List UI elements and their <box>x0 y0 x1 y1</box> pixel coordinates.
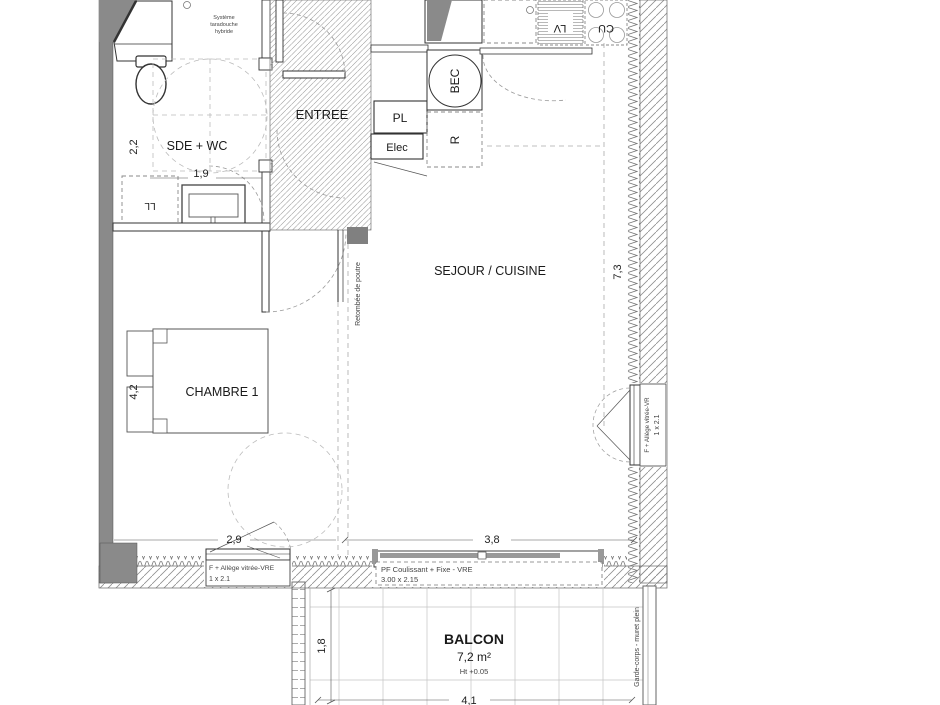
chambre-window-note-l1: F + Allège vitrée-VRE <box>209 565 275 572</box>
dishwasher-label: LV <box>553 22 566 34</box>
bottom-left-wall-block <box>100 543 137 583</box>
beam-block <box>347 227 368 244</box>
washing-machine-label: LL <box>144 200 156 211</box>
balcon-height-label: Ht +0.05 <box>460 667 489 676</box>
bay-sliding-leaf <box>380 553 560 558</box>
bed-notch-top <box>153 329 167 343</box>
sejour-window-frame <box>630 385 640 465</box>
entree-label: ENTREE <box>296 107 349 122</box>
sejour-window-swing-l2 <box>597 426 630 460</box>
wc-bowl <box>136 64 166 104</box>
chambre-door-swing <box>266 232 346 312</box>
chambre-label: CHAMBRE 1 <box>186 385 259 399</box>
dim-sejour-height: 7,3 <box>612 264 624 279</box>
chambre-turning-circle <box>228 433 342 547</box>
note-line2: taradouche <box>210 22 238 28</box>
floor-plan-drawing: SDE + WC ENTREE SEJOUR / CUISINE CHAMBRE… <box>0 0 940 705</box>
elec-label: Elec <box>386 142 408 154</box>
sde-wc-room <box>113 0 272 231</box>
note-line1: Système <box>213 15 234 21</box>
vanity-basin <box>189 194 238 217</box>
nightstand-1 <box>127 331 153 376</box>
water-heater-label: BEC <box>448 68 462 93</box>
beam-note-label: Retombée de poutre <box>355 262 362 326</box>
right-exterior-wall <box>640 0 667 583</box>
counter-edge <box>480 48 592 54</box>
sejour-label: SEJOUR / CUISINE <box>434 264 546 278</box>
sejour-window-note-l1: F + Allège vitrée-VR <box>644 397 651 453</box>
sejour-window-note-l2: 1 x 2.1 <box>654 414 661 435</box>
chambre-door-leaf <box>262 231 269 312</box>
cooktop-label: CU <box>598 22 614 34</box>
wall-stub <box>371 45 428 52</box>
dim-chambre-height: 4,2 <box>128 384 140 399</box>
sde-wc-label: SDE + WC <box>167 139 228 153</box>
walls <box>99 0 667 588</box>
ceiling-symbol <box>184 2 191 9</box>
right-wall-insulation <box>627 0 640 583</box>
cabinet-swing <box>483 55 566 101</box>
chambre-window-note-l2: 1 x 2.1 <box>209 576 230 583</box>
sde-east-wall-lower <box>262 172 270 227</box>
bay-handle <box>478 552 486 559</box>
dim-sejour-width: 3,8 <box>484 534 499 546</box>
balcony-right-wall <box>643 586 656 705</box>
beam-area <box>338 227 368 556</box>
balcony-left-wall <box>292 582 305 705</box>
dim-balcon-width: 4,1 <box>461 695 476 705</box>
sejour-window-swing-l1 <box>597 390 630 426</box>
railing-note-label: Garde-corps - muret plein <box>634 607 641 687</box>
chambre-window-swing-l <box>210 522 274 552</box>
note-line3: hybride <box>215 29 233 35</box>
dim-sde-width: 2,2 <box>128 139 140 154</box>
sejour-window-swing-arc <box>593 388 630 462</box>
dim-balcon-depth: 1,8 <box>316 638 328 653</box>
kitchen-counter <box>480 0 627 430</box>
balcon-label: BALCON <box>444 631 504 647</box>
floor-plan-page: SDE + WC ENTREE SEJOUR / CUISINE CHAMBRE… <box>0 0 940 705</box>
bay-window-note-l2: 3.00 x 2.15 <box>381 575 418 584</box>
bay-window-note-l1: PF Coulissant + Fixe - VRE <box>381 565 473 574</box>
sde-east-wall-upper <box>262 0 270 58</box>
left-exterior-wall <box>99 0 113 583</box>
sde-south-wall <box>113 223 270 231</box>
chambre-window-frame <box>206 549 290 560</box>
sink-box <box>484 0 536 43</box>
entry-door-leaf <box>283 71 345 78</box>
bed-mattress <box>153 329 268 433</box>
balcon-area-label: 7,2 m² <box>457 650 491 664</box>
entry-doorframe <box>276 0 283 62</box>
elec-leader-line <box>374 162 427 176</box>
sink-tap <box>527 7 534 14</box>
refrigerator-label: R <box>448 135 462 144</box>
dim-sde-depth: 1,9 <box>193 168 208 180</box>
bed-notch-bottom <box>153 419 167 433</box>
dim-chambre-width: 2,9 <box>226 534 241 546</box>
placard-label: PL <box>393 111 408 125</box>
